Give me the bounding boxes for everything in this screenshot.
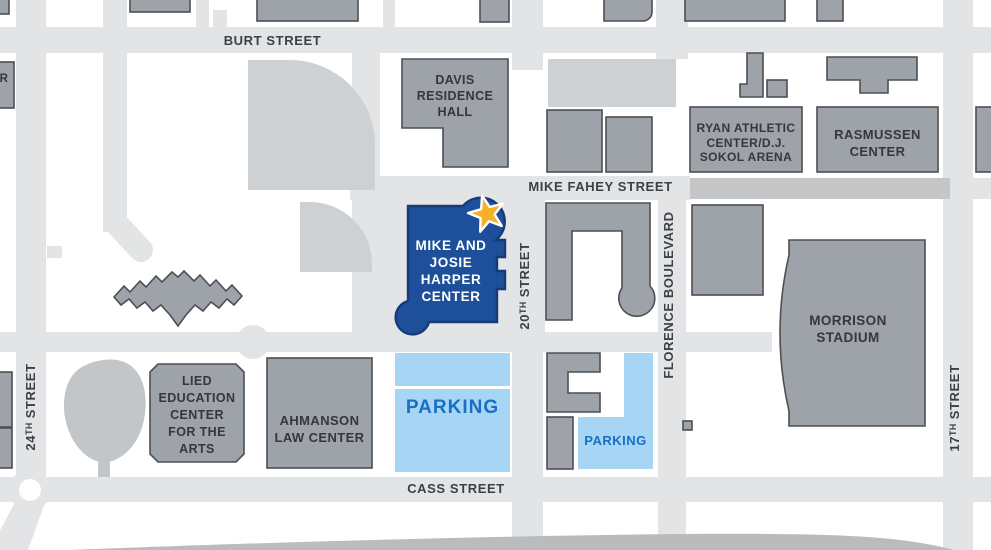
c-shaped-building — [547, 353, 600, 412]
mike-fahey-street-label: MIKE FAHEY STREET — [508, 179, 693, 195]
parking-lot-1-label: PARKING — [395, 400, 510, 416]
driveway-stub — [213, 10, 227, 27]
mike-fahey-street-road-dark-segment — [690, 178, 950, 199]
burt-street-label: BURT STREET — [190, 33, 355, 49]
clipped-building-label: R — [0, 71, 9, 87]
building-right-edge — [976, 107, 991, 172]
20th-street-label: 20ᵀᴴ STREET — [517, 201, 533, 371]
driveway-stub — [196, 0, 209, 27]
tree-blob — [64, 359, 146, 477]
campus-map: BURT STREET MIKE FAHEY STREET CASS STREE… — [0, 0, 991, 550]
ahmanson-law-center-label: AHMANSON LAW CENTER — [267, 412, 372, 446]
bar-building — [547, 417, 573, 469]
lied-center-label: LIED EDUCATION CENTER FOR THE ARTS — [150, 373, 244, 458]
road-stub-north — [383, 0, 395, 27]
building-above-ryan-b — [767, 80, 787, 97]
building-top-e — [604, 0, 652, 21]
small-structure — [683, 421, 692, 430]
parking-lot-2-label: PARKING — [578, 433, 653, 449]
campus-path-road — [103, 0, 127, 232]
building-above-ryan-a — [740, 53, 763, 97]
highway-band — [0, 534, 991, 550]
building-top-b — [130, 0, 190, 12]
campus-path-road-diagonal — [115, 222, 141, 250]
building-top-a — [0, 0, 9, 14]
campus-road — [0, 332, 772, 352]
morrison-stadium-label: MORRISON STADIUM — [788, 312, 908, 346]
arch-building — [546, 203, 655, 320]
road-stub — [47, 246, 62, 258]
parking-lot-divider — [395, 386, 510, 389]
florence-boulevard-road-north — [656, 0, 688, 59]
building-top-g — [817, 0, 843, 21]
building-mid-a — [547, 110, 602, 172]
building-top-c — [257, 0, 358, 21]
17th-street-label: 17ᵀᴴ STREET — [947, 323, 963, 493]
building-above-rasmussen — [827, 57, 917, 93]
landscape-block — [548, 59, 676, 107]
rasmussen-center-label: RASMUSSEN CENTER — [817, 126, 938, 160]
burt-street-road — [0, 27, 991, 53]
building-top-d — [480, 0, 509, 22]
building-mid-b — [606, 117, 652, 172]
building-west-of-stadium — [692, 205, 763, 295]
ryan-sokol-label: RYAN ATHLETIC CENTER/D.J. SOKOL ARENA — [690, 121, 802, 165]
chevron-hall-building — [114, 271, 242, 326]
building-top-f — [685, 0, 785, 21]
harper-center-label: MIKE AND JOSIE HARPER CENTER — [406, 237, 496, 305]
building-left-edge-lower-a — [0, 372, 12, 427]
24th-street-label: 24ᵀᴴ STREET — [23, 322, 39, 492]
cass-street-label: CASS STREET — [376, 481, 536, 497]
20th-street-road-north — [512, 0, 543, 70]
florence-boulevard-label: FLORENCE BOULEVARD — [661, 200, 677, 390]
roundabout — [236, 325, 270, 359]
building-left-edge-lower-b — [0, 428, 12, 468]
davis-residence-hall-label: DAVIS RESIDENCE HALL — [404, 72, 506, 120]
